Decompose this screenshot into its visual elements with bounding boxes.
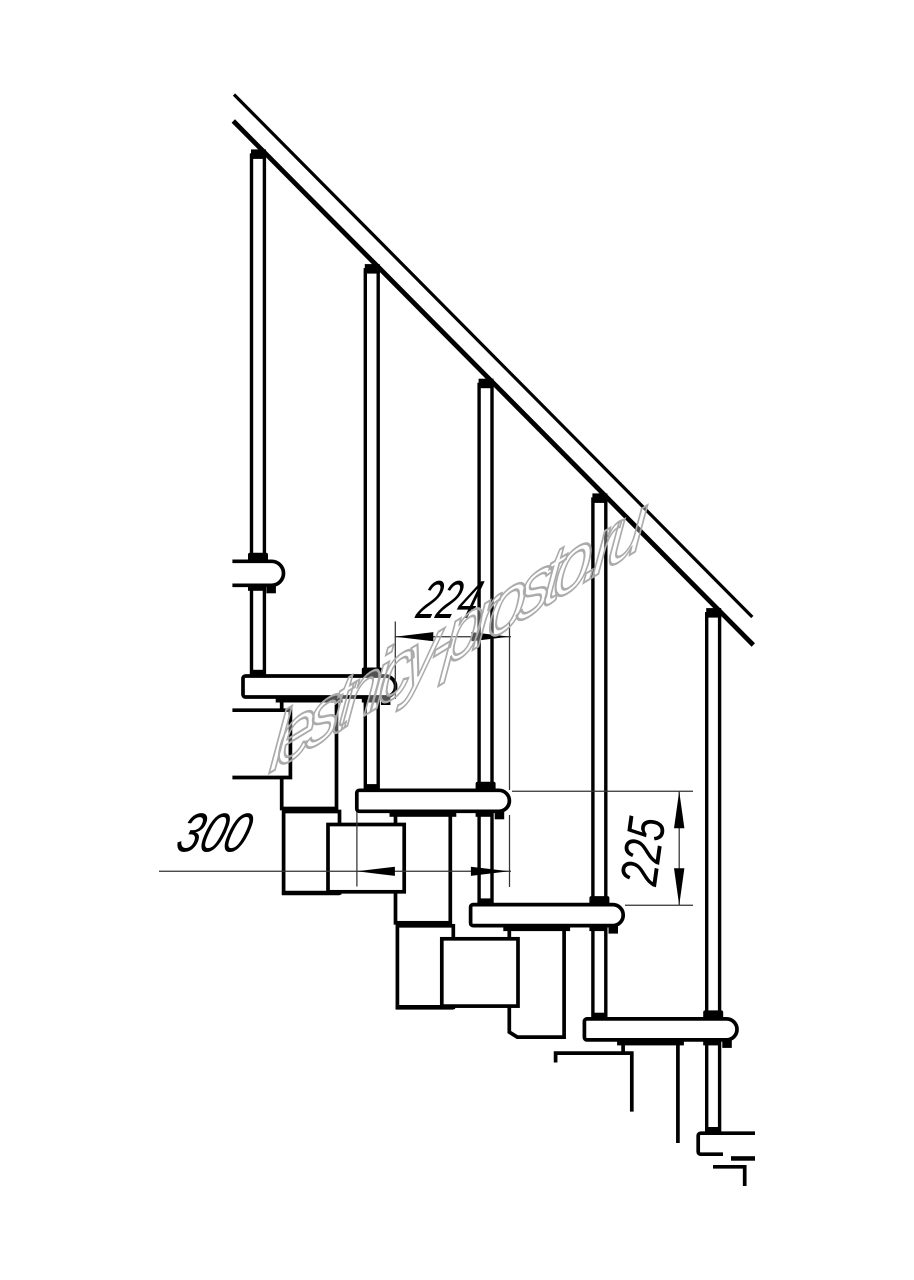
svg-text:225: 225 (608, 813, 676, 889)
